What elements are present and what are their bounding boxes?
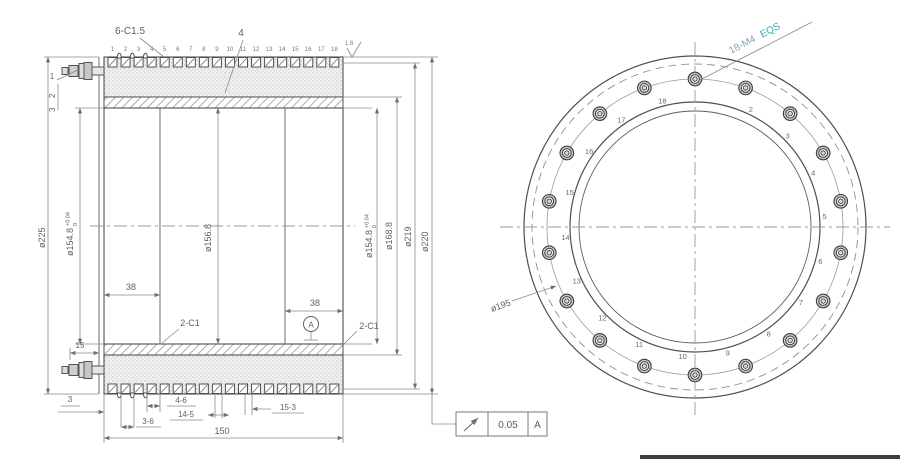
hole-label-3: 3 (786, 131, 790, 140)
slot-number-12: 12 (253, 47, 260, 53)
end-view: 23456789101112131415161718 18-M4 EQS ø19… (489, 21, 890, 415)
lower-liner-band (104, 344, 343, 355)
bolt-circle-leader (512, 286, 556, 301)
hole-label-14: 14 (561, 233, 569, 242)
slot-offset-dim: 3 (68, 395, 73, 404)
hole-label-18: 18 (658, 97, 666, 106)
pitch-d-dim: 15-3 (280, 403, 297, 412)
slotod-dim: ø220 (420, 231, 430, 252)
bolt-hole-7 (816, 294, 830, 308)
thread-callout-leader (700, 22, 812, 80)
bore-right-tol-up: +0.04 (365, 214, 371, 228)
bolt-hole-13 (560, 294, 574, 308)
hole-label-5: 5 (823, 212, 827, 221)
fcf-datum: A (534, 420, 541, 431)
surface-finish-value: 1.6 (345, 41, 354, 47)
pitch-a-dim: 4-6 (175, 396, 187, 405)
bolt-hole-10 (688, 368, 702, 382)
bolt-hole-6 (834, 246, 848, 260)
hole-label-7: 7 (799, 298, 803, 307)
bolt-hole-5 (834, 195, 848, 209)
slotroot-dim: ø219 (403, 226, 413, 247)
slot-number-11: 11 (240, 47, 247, 53)
bolt-hole-15 (542, 195, 556, 209)
hole-label-17: 17 (617, 115, 625, 124)
clamp-bolt-bottom (62, 362, 104, 379)
hole-label-12: 12 (598, 314, 606, 323)
part-callout-1: 1 (50, 72, 55, 81)
bolt-hole-9 (739, 359, 753, 373)
slot-number-13: 13 (266, 47, 273, 53)
bolt-hole-4 (816, 146, 830, 160)
od-dim: ø225 (37, 227, 47, 248)
boreL-dim-group: ø154.8 +0.04 0 (65, 212, 79, 256)
pitch-c-dim: 14-5 (178, 410, 195, 419)
bolt-hole-18 (638, 81, 652, 95)
chamfer-right-leader (344, 331, 357, 344)
hole-label-6: 6 (818, 257, 822, 266)
hole-label-10: 10 (678, 352, 686, 361)
title-block-edge (640, 455, 900, 459)
datum-letter: A (308, 321, 314, 330)
slot-number-1: 1 (111, 47, 115, 53)
slot-number-14: 14 (279, 47, 286, 53)
chamfer-callout-label: 6-C1.5 (115, 26, 145, 37)
groove-dim: ø168.8 (384, 222, 394, 250)
fcf-tolerance: 0.05 (498, 420, 518, 431)
part-callout-2: 2 (48, 93, 57, 98)
clamp-bolt-top (62, 63, 104, 80)
bolt-circle-dim: ø195 (489, 297, 512, 313)
bore-center-dim: ø156.8 (203, 224, 213, 252)
hole-number-labels: 23456789101112131415161718 (561, 97, 826, 361)
section-view: 123456789101112131415161718 6-C1.5 4 1.6… (37, 26, 547, 443)
bolt-hole-1 (688, 72, 702, 86)
bolt-offset-dim: 15 (76, 341, 85, 350)
chamfer-left-label: 2-C1 (180, 318, 200, 328)
feature-control-frame: 0.05 A (432, 394, 547, 436)
slot-number-labels: 123456789101112131415161718 (111, 47, 339, 53)
thread-spec-label: 18-M4 (727, 34, 758, 57)
bolt-hole-3 (783, 107, 797, 121)
thread-suffix-label: EQS (759, 21, 783, 41)
step-right-dim: 38 (310, 298, 320, 308)
bore-left-tol-dn: 0 (73, 223, 79, 226)
slot-number-5: 5 (163, 47, 167, 53)
bolt-hole-16 (560, 146, 574, 160)
slot-number-2: 2 (124, 47, 128, 53)
slot-number-18: 18 (331, 47, 338, 53)
engineering-drawing: 123456789101112131415161718 6-C1.5 4 1.6… (0, 0, 900, 459)
bolt-hole-17 (593, 107, 607, 121)
bolt-hole-11 (638, 359, 652, 373)
slot-number-8: 8 (202, 47, 206, 53)
slot-number-9: 9 (215, 47, 219, 53)
upper-liner-band (104, 97, 343, 108)
step-left-dim: 38 (126, 282, 136, 292)
slot-number-3: 3 (137, 47, 141, 53)
hole-label-4: 4 (811, 168, 815, 177)
part-callout-3: 3 (48, 107, 57, 112)
hole-label-16: 16 (585, 147, 593, 156)
hole-label-2: 2 (749, 105, 753, 114)
body-callout-label: 4 (238, 28, 244, 39)
pitch-b-dim: 3-6 (142, 417, 154, 426)
bore-right-dim: ø154.8 (364, 230, 374, 258)
surface-finish-symbol: 1.6 (345, 41, 361, 57)
bore-left-dim: ø154.8 (65, 228, 75, 256)
bolt-hole-14 (542, 246, 556, 260)
bolt-hole-2 (739, 81, 753, 95)
slot-number-10: 10 (227, 47, 234, 53)
hole-label-8: 8 (767, 330, 771, 339)
bolt-hole-12 (593, 334, 607, 348)
slot-number-15: 15 (292, 47, 299, 53)
boreR-dim-group: ø154.8 +0.04 0 (364, 214, 378, 258)
hole-label-9: 9 (726, 348, 730, 357)
bore-left-tol-up: +0.04 (66, 212, 72, 226)
slot-number-7: 7 (189, 47, 193, 53)
slot-number-17: 17 (318, 47, 325, 53)
bolt-hole-8 (783, 334, 797, 348)
slot-number-16: 16 (305, 47, 312, 53)
hole-label-13: 13 (573, 277, 581, 286)
bore-right-tol-dn: 0 (372, 225, 378, 228)
chamfer-right-label: 2-C1 (359, 321, 379, 331)
length-dim: 150 (214, 426, 229, 436)
drawing-canvas: 123456789101112131415161718 6-C1.5 4 1.6… (0, 0, 900, 459)
slot-number-6: 6 (176, 47, 180, 53)
hole-label-11: 11 (635, 340, 643, 349)
hole-label-15: 15 (566, 188, 574, 197)
